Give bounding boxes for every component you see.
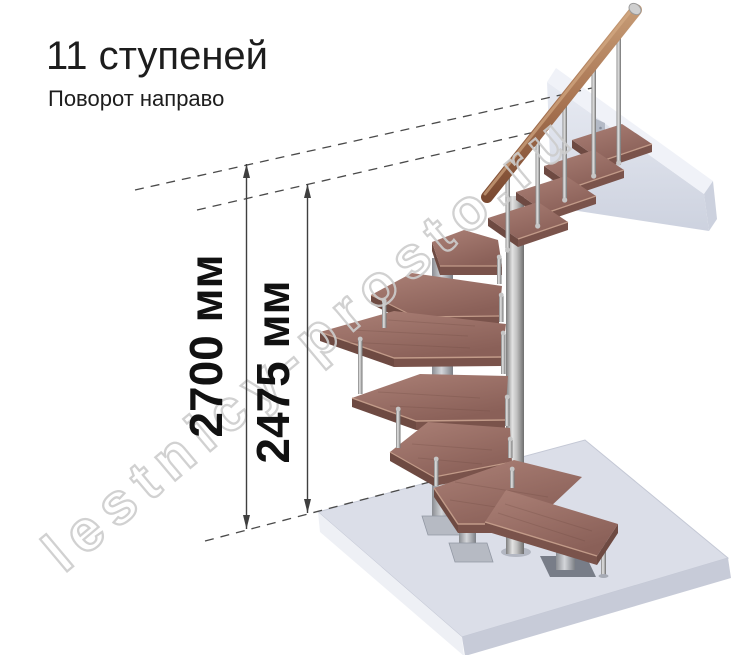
baluster — [617, 30, 622, 165]
page-title: 11 ступеней — [46, 34, 268, 78]
dimension-label-2475: 2475 мм — [247, 280, 299, 463]
baluster — [592, 61, 597, 178]
arrowhead-up — [243, 164, 250, 178]
page-subtitle: Поворот направо — [48, 86, 224, 112]
tread-4 — [352, 374, 508, 430]
screenshot-root: lestnicy-prosto.ru 2700 мм 2475 мм 11 ст… — [0, 0, 743, 655]
arrowhead-up — [304, 184, 311, 198]
arrowhead-down — [304, 499, 311, 513]
dimension-label-2700: 2700 мм — [180, 254, 232, 437]
dimension-to-top-step: 2475 мм — [247, 184, 311, 513]
arrowhead-down — [243, 515, 250, 529]
